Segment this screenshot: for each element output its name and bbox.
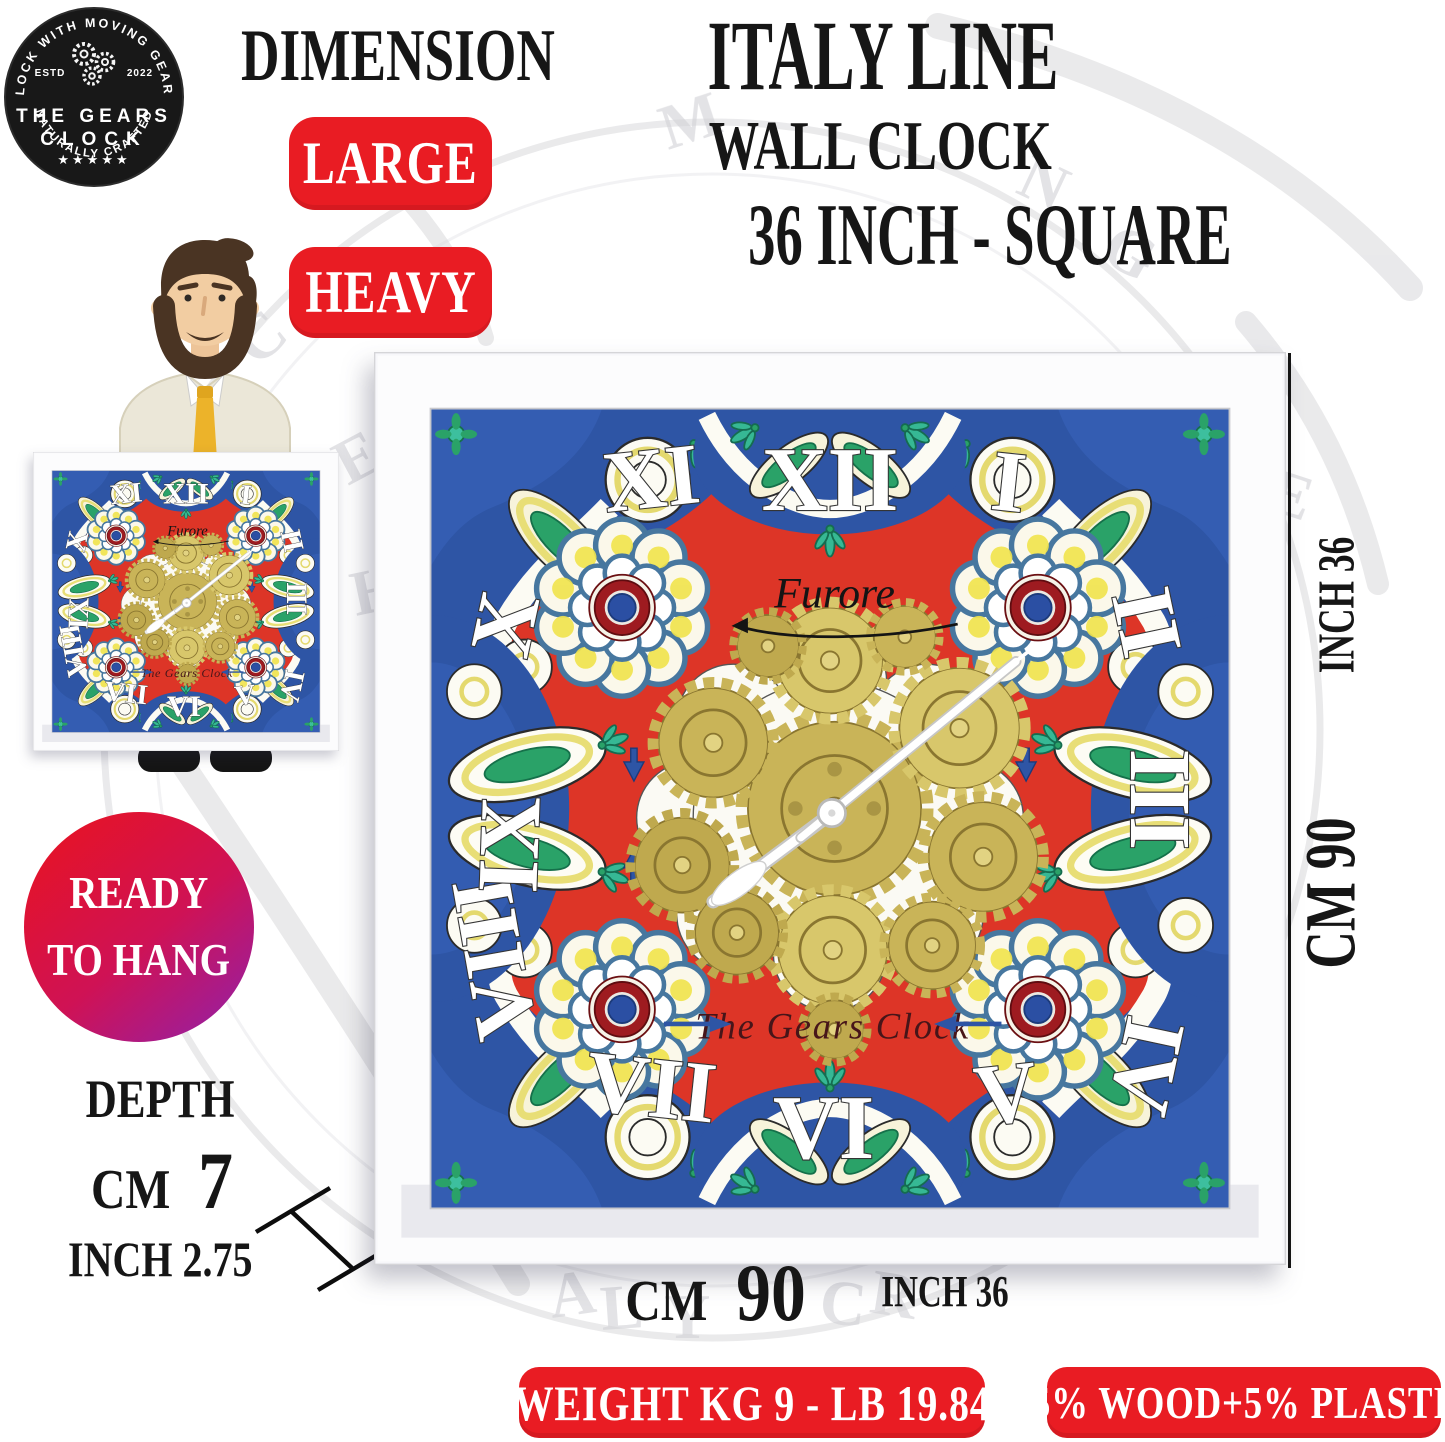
height-dimension-line — [1288, 353, 1291, 1268]
width-cm-value: 90 — [736, 1246, 806, 1340]
weight-badge: WEIGHT KG 9 - LB 19.84 — [519, 1367, 985, 1438]
weight-badge-label: WEIGHT KG 9 - LB 19.84 — [514, 1374, 991, 1432]
badge-heavy-label: HEAVY — [305, 258, 476, 327]
height-cm-label: CM 90 — [1290, 817, 1373, 968]
wall-clock-product — [374, 352, 1286, 1265]
material-badge-label: 95% WOOD+5% PLASTIC — [1013, 1376, 1445, 1429]
product-infographic: M C E H N G E A L Y C R — [0, 0, 1445, 1442]
small-clock-preview — [33, 452, 339, 751]
ready-line1: READY — [69, 860, 208, 927]
width-cm-label: CM 90 — [600, 1246, 830, 1340]
ready-line2: TO HANG — [48, 927, 231, 994]
brand-logo-badge: CLOCK WITH MOVING GEARS ESTD 2022 THE GE… — [2, 2, 188, 190]
width-cm-unit: CM — [625, 1267, 707, 1334]
logo-year: 2022 — [127, 68, 153, 79]
product-title: ITALY LINE WALL CLOCK 36 INCH - SQUARE — [600, 6, 1160, 280]
ready-to-hang-badge: READY TO HANG — [24, 812, 254, 1042]
logo-estd: ESTD — [35, 68, 66, 79]
depth-label: DEPTH — [86, 1072, 235, 1126]
badge-large-label: LARGE — [303, 129, 478, 198]
depth-cm-unit: CM — [91, 1158, 170, 1222]
width-inch-label: INCH 36 — [860, 1266, 1030, 1317]
badge-large: LARGE — [289, 117, 492, 210]
svg-text:A: A — [544, 1255, 600, 1332]
depth-cm-value: 7 — [198, 1134, 233, 1228]
height-inch-label: INCH 36 — [1308, 537, 1367, 674]
dimension-heading: DIMENSION — [180, 14, 616, 99]
material-badge: 95% WOOD+5% PLASTIC — [1047, 1367, 1441, 1438]
title-line3: 36 INCH - SQUARE — [748, 192, 1232, 280]
title-line1: ITALY LINE — [708, 6, 1059, 106]
depth-inch: INCH 2.75 — [68, 1230, 252, 1288]
title-line2: WALL CLOCK — [708, 112, 1051, 182]
